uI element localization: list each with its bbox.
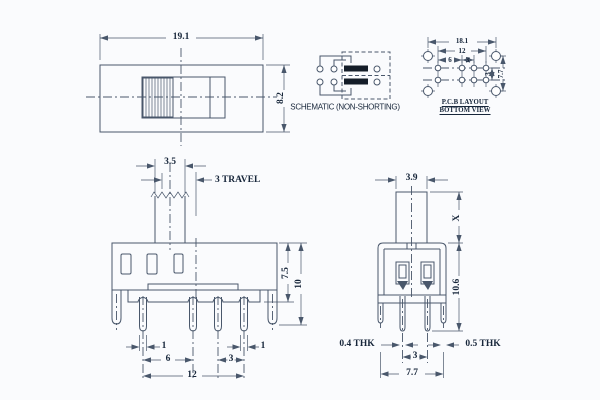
side-pin-pitch-dim: 3 — [413, 351, 418, 361]
front-pitch-a-dim: 6 — [166, 354, 171, 364]
pcb-caption-line2: BOTTOM VIEW — [440, 107, 491, 115]
pcb-caption-line1: P.C.B LAYOUT — [442, 99, 489, 107]
pcb-hole-span-dim: 7.7 — [497, 69, 505, 78]
side-knob-width-dim: 3.9 — [406, 173, 418, 183]
side-view-linework — [375, 176, 463, 378]
side-body-height-dim: 10.6 — [452, 279, 462, 296]
top-view-width-dim: 19.1 — [173, 32, 190, 42]
front-knob-width-dim: 3.5 — [164, 157, 176, 167]
side-leg-span-dim: 7.7 — [406, 368, 418, 378]
pcb-row-gap-dim: 3 — [484, 72, 492, 76]
pcb-pitch-a-dim: 6 — [448, 56, 452, 64]
schematic-linework — [317, 52, 390, 99]
front-view-linework — [112, 159, 307, 381]
schematic-caption: SCHEMATIC (NON-SHORTING) — [290, 103, 399, 112]
drawing-linework — [0, 0, 600, 400]
front-span-dim: 12 — [187, 370, 197, 380]
top-view-height-dim: 8.2 — [276, 92, 286, 104]
pcb-pitch-b-dim: 3 — [466, 56, 470, 64]
slide-switch-engineering-drawing: 19.1 8.2 SCHEMATIC (NON-SHORTING) 18.1 1… — [0, 0, 600, 400]
front-upper-height-dim: 7.5 — [281, 267, 291, 279]
front-travel-dim: 3 TRAVEL — [215, 175, 260, 185]
top-view-linework — [86, 34, 290, 146]
side-leg-thickness-dim: 0.5 THK — [465, 339, 500, 349]
front-pitch-b-dim: 3 — [229, 354, 234, 364]
pcb-overall-dim: 18.1 — [456, 37, 468, 45]
front-pin-width-left-dim: 1 — [162, 341, 167, 351]
side-knob-height-dim: X — [452, 214, 462, 221]
front-total-height-dim: 10 — [294, 279, 304, 289]
front-pin-width-right-dim: 1 — [261, 341, 266, 351]
pcb-span-dim: 12 — [459, 47, 466, 55]
side-pin-thickness-dim: 0.4 THK — [339, 339, 374, 349]
